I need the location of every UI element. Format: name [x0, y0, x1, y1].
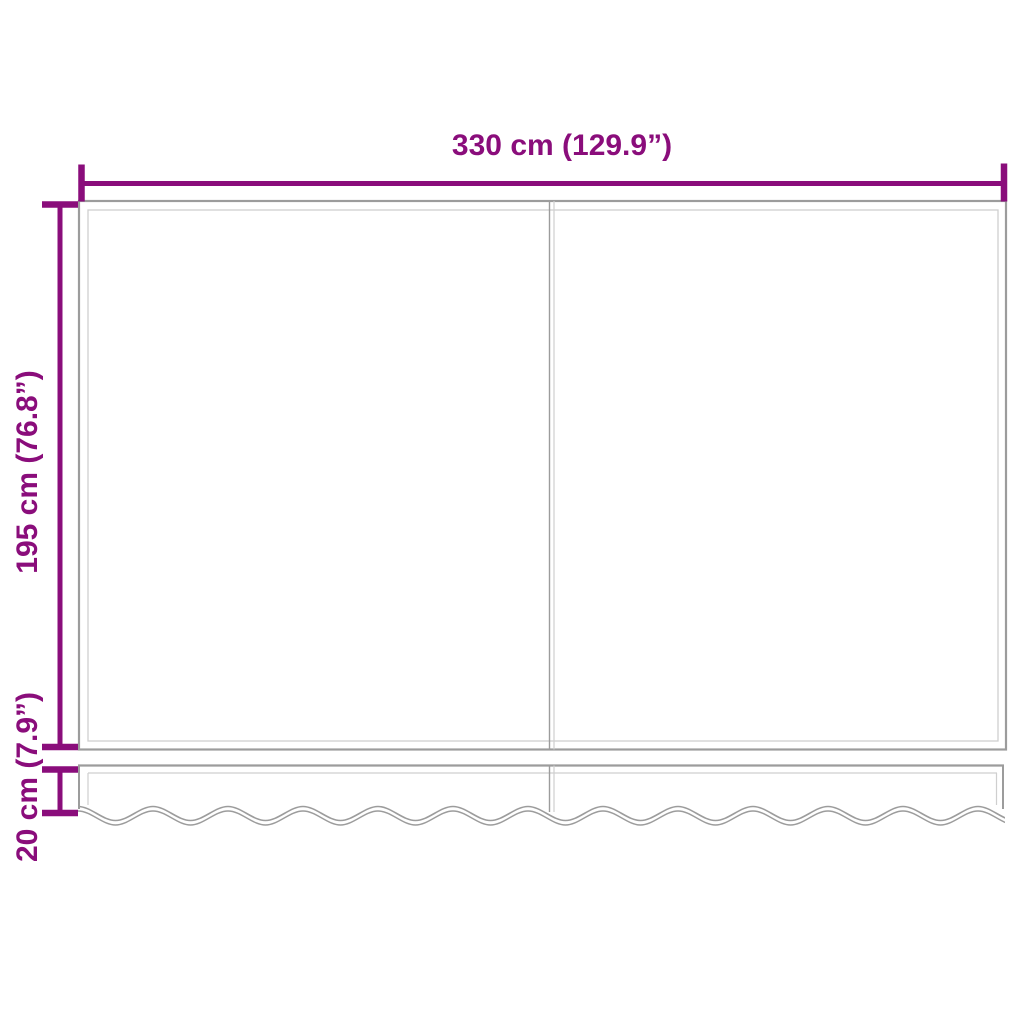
- width-dimension-line: [82, 164, 1005, 202]
- valance-wave-edge: [78, 807, 1024, 826]
- height-dimension-label: 195 cm (76.8”): [13, 370, 43, 573]
- product-dimension-diagram: 330 cm (129.9”) 195 cm (76.8”) 20 cm (7.…: [0, 0, 1024, 1024]
- valance-wave-inner-line: [78, 811, 1024, 825]
- fabric-panel: [79, 201, 1006, 750]
- valance-dimension-line: [42, 770, 78, 814]
- fabric-panel-outline: [79, 201, 1006, 750]
- fabric-panel-inner-line: [88, 210, 998, 741]
- height-dimension-line: [42, 205, 78, 748]
- valance-height-dimension-label: 20 cm (7.9”): [13, 692, 43, 862]
- valance: [78, 765, 1024, 825]
- width-dimension-label: 330 cm (129.9”): [452, 131, 672, 161]
